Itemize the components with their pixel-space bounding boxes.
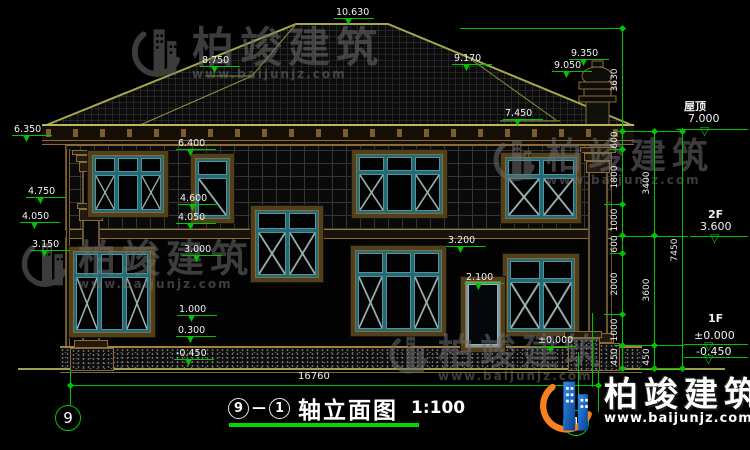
value-1f-zero: ±0.000 — [694, 329, 735, 342]
pilaster-right-capital — [586, 161, 610, 173]
dim-chain-label: 2000 — [609, 262, 621, 306]
elevation-marker: 4.600▼ — [178, 193, 218, 212]
roof-outline — [44, 24, 634, 126]
title-scale: 1:100 — [411, 398, 465, 418]
eave-cornice — [42, 124, 634, 145]
elevation-marker: -0.450▼ — [174, 348, 214, 367]
marker-triangle-icon: ▼ — [189, 205, 218, 212]
marker-triangle-icon: ▼ — [187, 337, 216, 344]
marker-triangle-icon: ▼ — [475, 284, 504, 291]
pillar-left-base — [74, 340, 108, 348]
pilaster-right-shaft — [588, 173, 608, 333]
total-width-dimension: 16760 — [298, 371, 330, 382]
dim-chain-label: 450 — [641, 335, 653, 379]
marker-triangle-icon: ▼ — [547, 347, 576, 354]
title-block: 9 — 1 轴立面图 1:100 — [228, 391, 465, 425]
marker-triangle-icon: ▼ — [193, 256, 222, 263]
axis-bubble-left: 9 — [55, 405, 81, 431]
window-2f-left — [88, 151, 168, 217]
marker-triangle-icon: ▼ — [514, 120, 543, 127]
elevation-marker: 4.050▼ — [20, 211, 60, 230]
elevation-marker: 3.150▼ — [30, 239, 70, 258]
label-1f: 1F — [708, 312, 723, 325]
title-separator: — — [252, 400, 266, 416]
window-2f-right — [501, 153, 581, 223]
elevation-marker: ±0.000▼ — [536, 335, 576, 354]
title-name: 轴立面图 — [298, 391, 398, 425]
window-1f-center — [351, 246, 446, 336]
marker-triangle-icon: ▼ — [463, 65, 492, 72]
elevation-marker: 7.450▼ — [503, 108, 543, 127]
marker-triangle-icon: ▼ — [187, 224, 216, 231]
dim-chain-label: 450 — [609, 335, 621, 379]
elevation-marker: 1.000▼ — [177, 304, 217, 323]
dim-chain-label: 600 — [609, 222, 621, 266]
title-axis-to: 1 — [269, 398, 290, 419]
dim-chain-line — [654, 131, 655, 368]
dim-connector — [614, 131, 682, 132]
title-underline — [229, 423, 419, 427]
marker-triangle-icon: ▼ — [23, 136, 52, 143]
title-axis-from: 9 — [228, 398, 249, 419]
marker-triangle-icon: ▼ — [37, 198, 66, 205]
dim-chain-label: 3400 — [641, 161, 653, 205]
window-1f-left — [69, 247, 155, 337]
window-1f-right — [503, 254, 579, 336]
marker-triangle-icon: ▼ — [187, 150, 216, 157]
marker-triangle-icon: ▼ — [31, 223, 60, 230]
elevation-marker: 3.000▼ — [182, 244, 222, 263]
level-triangle-icon: ▽ — [700, 126, 709, 137]
marker-triangle-icon: ▼ — [457, 247, 486, 254]
elevation-marker: 8.750▼ — [200, 55, 240, 74]
elevation-marker: 9.170▼ — [452, 53, 492, 72]
elevation-marker: 9.050▼ — [552, 60, 592, 79]
pillar-left-base — [70, 348, 114, 371]
floor-band — [65, 229, 612, 239]
marker-triangle-icon: ▼ — [345, 19, 374, 26]
pilaster-right-capital — [584, 153, 612, 161]
dim-extension-right — [598, 370, 599, 412]
elevation-drawing: 屋顶 7.000 ▽ 2F 3.600 ▽ 1F ±0.000 ▽ -0.450… — [0, 0, 750, 450]
ground-line-2 — [60, 372, 642, 373]
level-triangle-icon: ▽ — [710, 233, 719, 244]
elevation-marker: 6.400▼ — [176, 138, 216, 157]
elevation-marker: 4.750▼ — [26, 186, 66, 205]
level-triangle-icon: ▽ — [704, 354, 713, 365]
elevation-marker: 6.350▼ — [12, 124, 52, 143]
window-2f-center — [352, 150, 447, 218]
marker-triangle-icon: ▼ — [185, 360, 214, 367]
elevation-marker: 10.630▼ — [334, 7, 374, 26]
window-stairwell — [251, 206, 323, 282]
dim-chain-label: 1800 — [609, 155, 621, 199]
dim-chain-label: 7450 — [669, 228, 681, 272]
elevation-marker: 4.050▼ — [176, 212, 216, 231]
marker-triangle-icon: ▼ — [563, 72, 592, 79]
dim-chain-label: 3600 — [641, 268, 653, 312]
marker-triangle-icon: ▼ — [41, 251, 70, 258]
axis-bubble-right: 1 — [563, 410, 589, 436]
elevation-marker: 2.100▼ — [464, 272, 504, 291]
marker-triangle-icon: ▼ — [188, 316, 217, 323]
axis-extension-line — [70, 386, 71, 406]
marker-triangle-icon: ▼ — [211, 67, 240, 74]
roof-level-line — [676, 129, 748, 130]
value-1f-minus: -0.450 — [696, 345, 731, 358]
dim-chain-line — [682, 131, 683, 368]
axis-extension-line — [592, 313, 593, 387]
elevation-marker: 3.200▼ — [446, 235, 486, 254]
axis-extension-line — [578, 352, 579, 412]
elevation-marker: 0.300▼ — [176, 325, 216, 344]
dim-connector — [460, 28, 622, 29]
width-dim-line — [70, 385, 598, 386]
dim-chain-label: 3630 — [609, 58, 621, 102]
